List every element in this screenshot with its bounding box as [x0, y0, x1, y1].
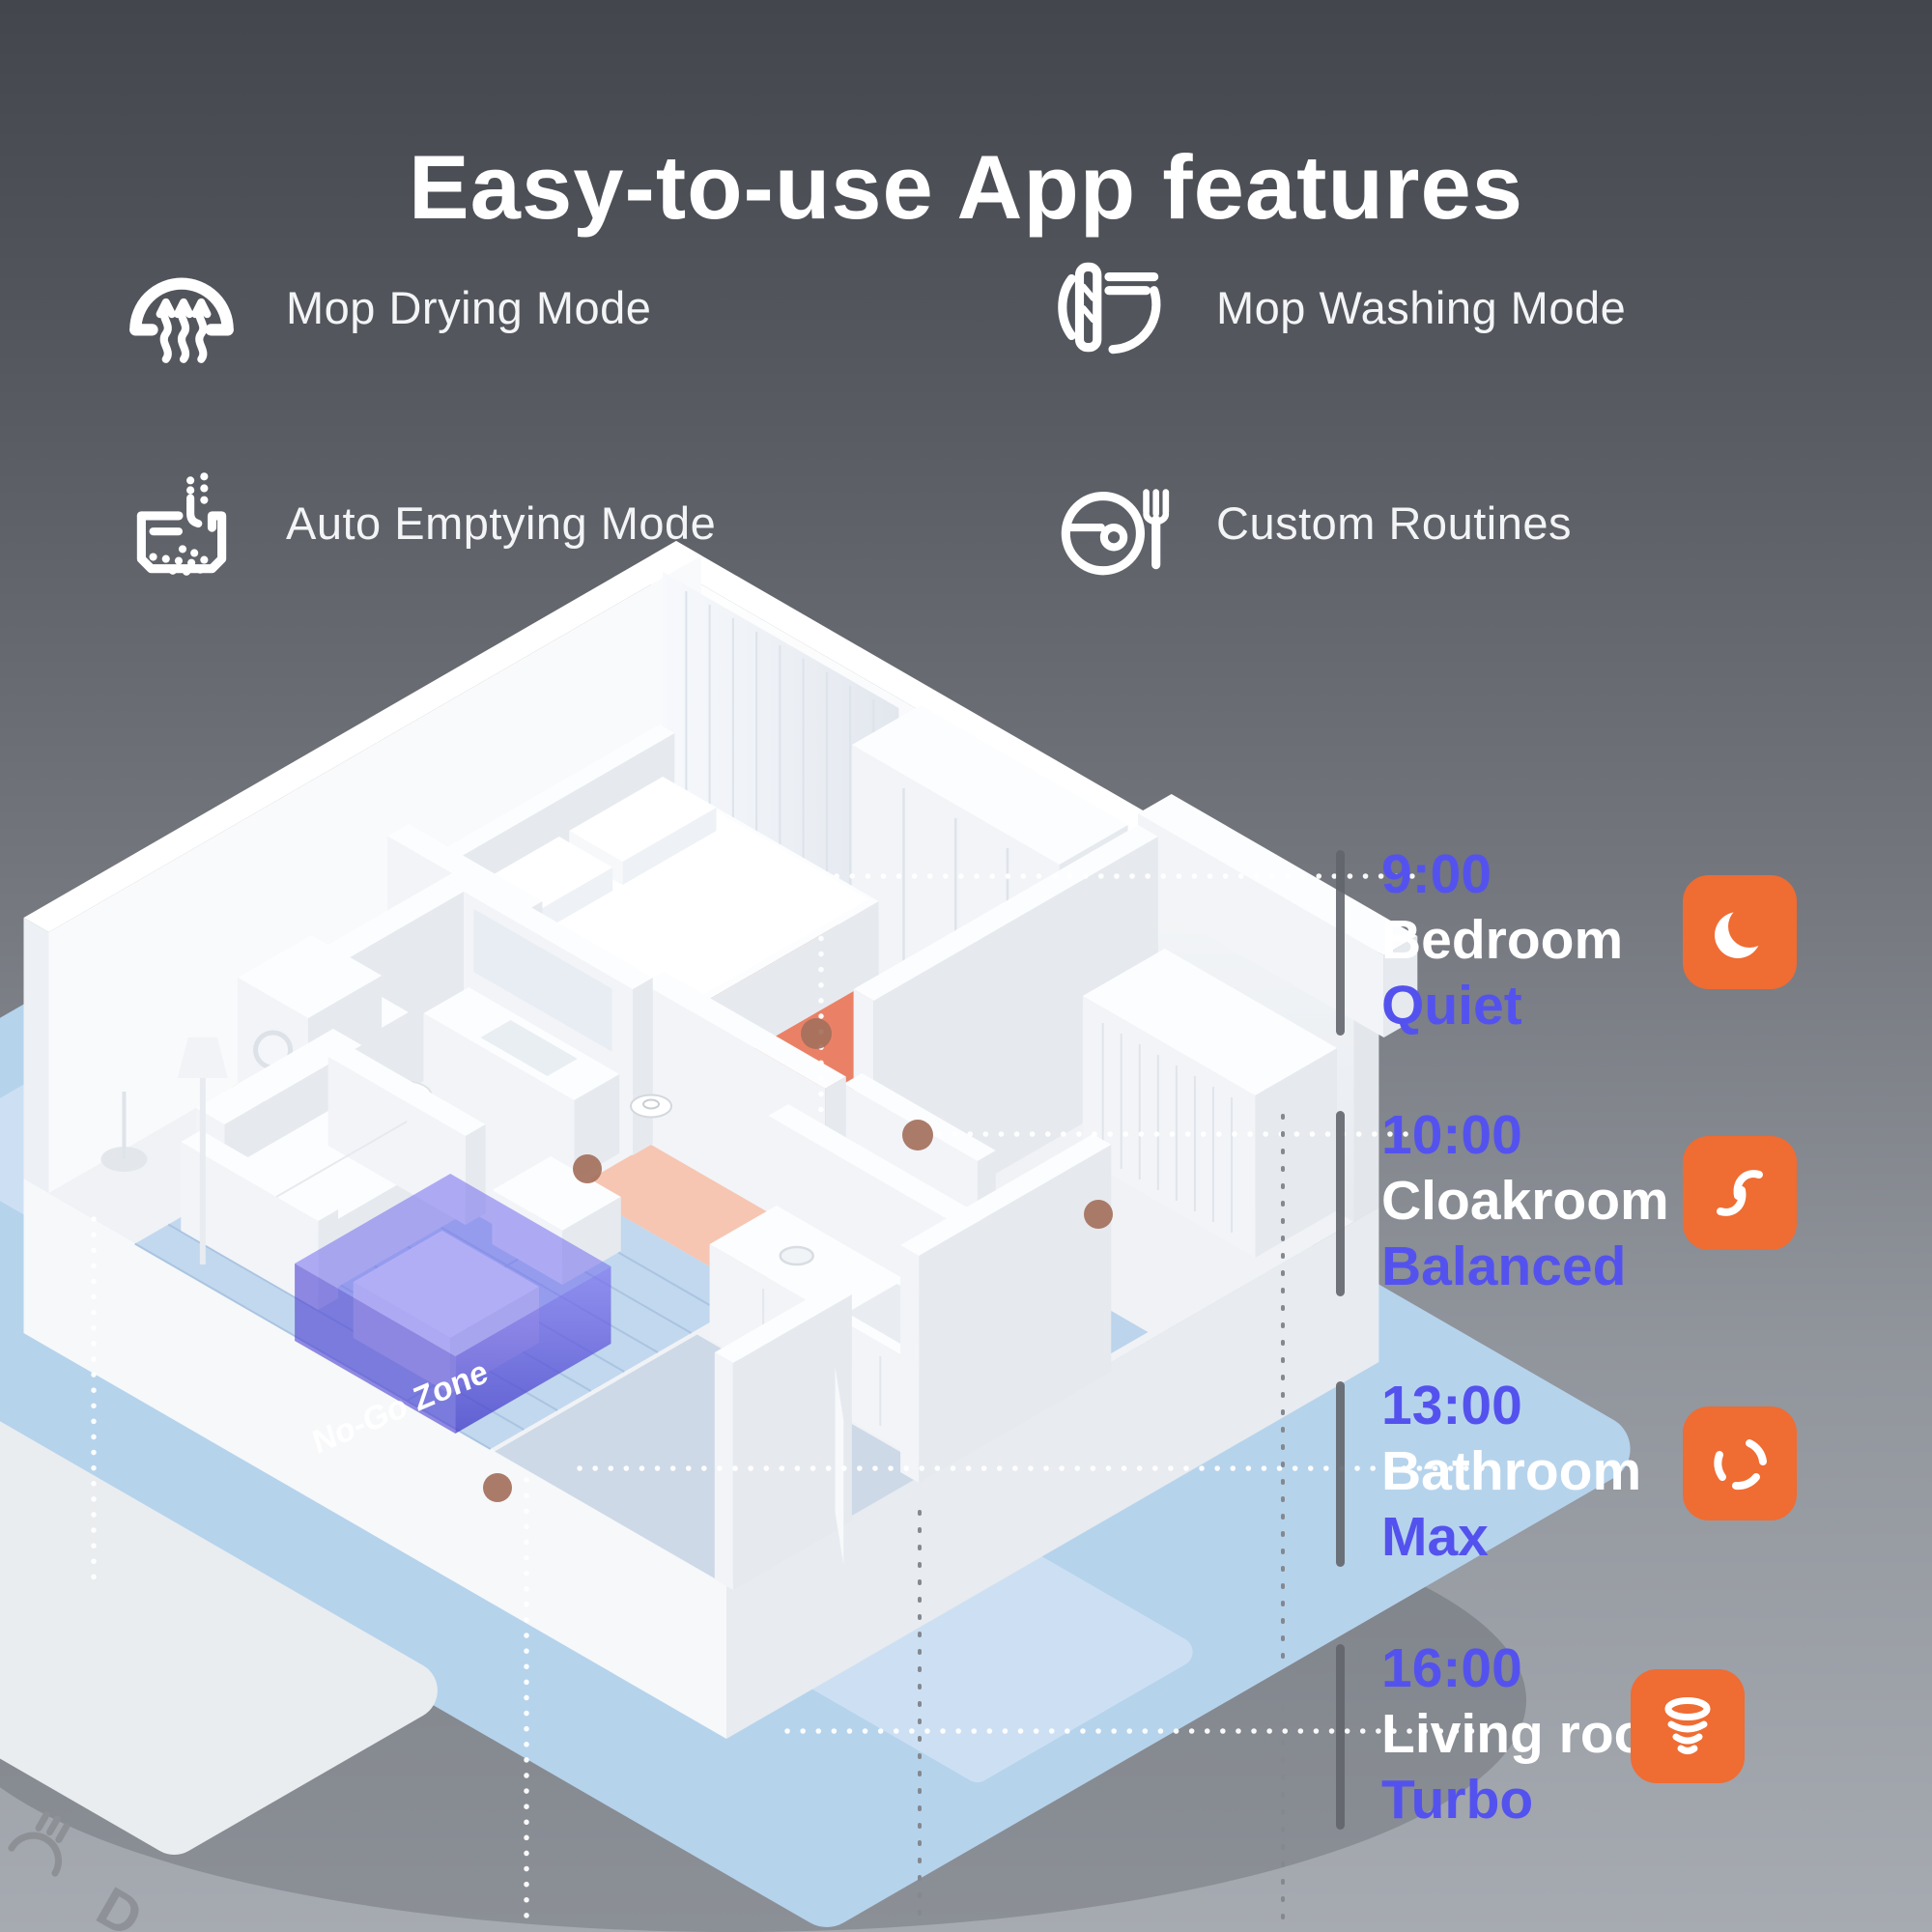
phone-partial-label: D — [87, 1875, 154, 1932]
mop-washing-icon — [1048, 243, 1176, 371]
mop-drying-icon — [118, 243, 245, 371]
feature-mop-washing: Mop Washing Mode — [1048, 243, 1626, 371]
auto-emptying-icon — [118, 459, 245, 586]
custom-routines-icon — [1048, 459, 1176, 586]
feature-auto-emptying: Auto Emptying Mode — [118, 459, 716, 586]
isometric-apartment — [0, 541, 1597, 1932]
feature-mop-drying: Mop Drying Mode — [118, 243, 651, 371]
feature-label: Mop Washing Mode — [1216, 281, 1626, 334]
feature-label: Mop Drying Mode — [286, 281, 651, 334]
promo-page: No-Go Zone D Easy-to-use App features — [0, 0, 1932, 1932]
page-title: Easy-to-use App features — [0, 135, 1932, 240]
feature-custom-routines: Custom Routines — [1048, 459, 1572, 586]
feature-label: Auto Emptying Mode — [286, 497, 716, 550]
feature-label: Custom Routines — [1216, 497, 1572, 550]
